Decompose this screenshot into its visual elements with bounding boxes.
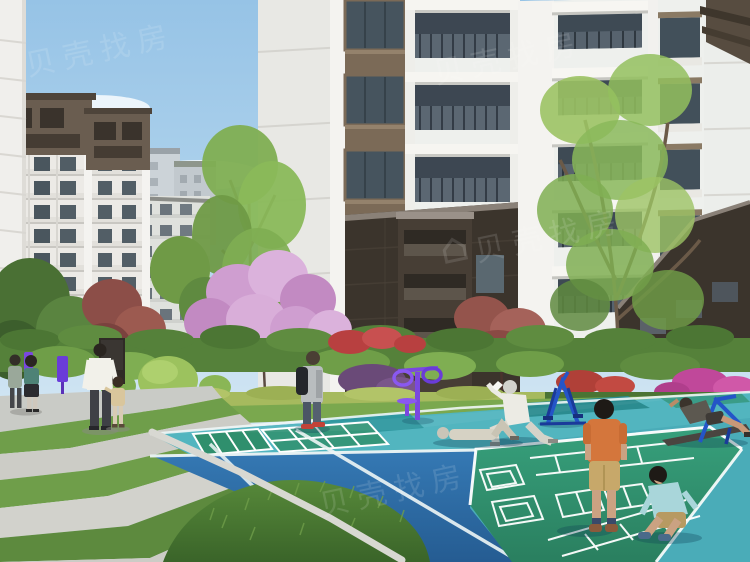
large-green-tree-right — [537, 54, 704, 338]
scene-canvas: 贝壳找房 贝壳找房 贝壳找房 贝壳找房 — [0, 0, 750, 562]
rendering-scene: 贝壳找房 贝壳找房 贝壳找房 贝壳找房 — [0, 0, 750, 562]
